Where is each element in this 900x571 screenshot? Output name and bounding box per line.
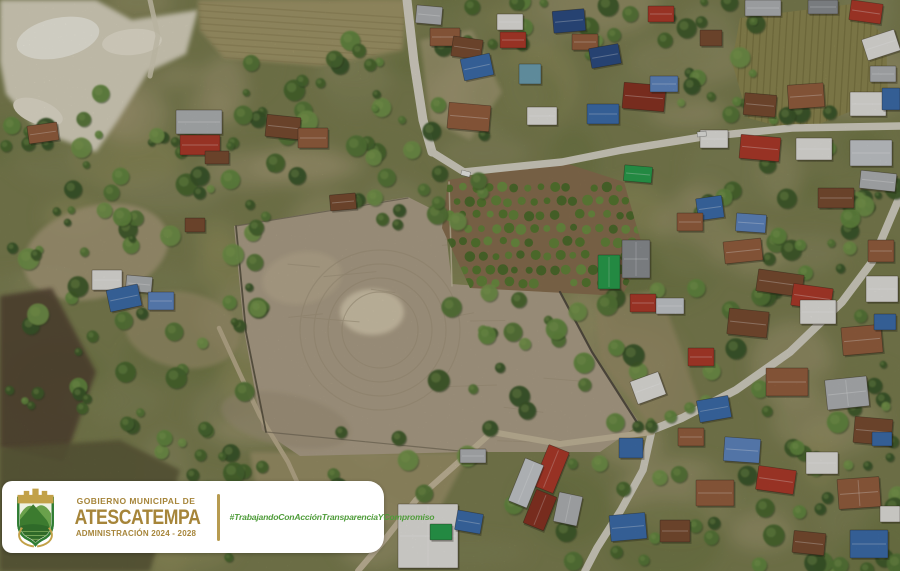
campaign-hashtag: #TrabajandoConAcciónTransparenciaYCompro… (230, 512, 443, 522)
crest-chief (18, 488, 54, 503)
crest-shield (18, 497, 52, 544)
banner-text-block: GOBIERNO MUNICIPAL DE ATESCATEMPA ADMINI… (63, 496, 209, 538)
administration-period: ADMINISTRACIÓN 2024 - 2028 (63, 529, 209, 538)
municipal-banner: GOBIERNO MUNICIPAL DE ATESCATEMPA ADMINI… (2, 481, 384, 553)
municipal-crest-logo (12, 487, 59, 548)
banner-divider (217, 494, 220, 541)
municipality-name: ATESCATEMPA (75, 507, 198, 528)
screenshot-root: GOBIERNO MUNICIPAL DE ATESCATEMPA ADMINI… (0, 0, 900, 571)
government-label: GOBIERNO MUNICIPAL DE (63, 496, 209, 506)
